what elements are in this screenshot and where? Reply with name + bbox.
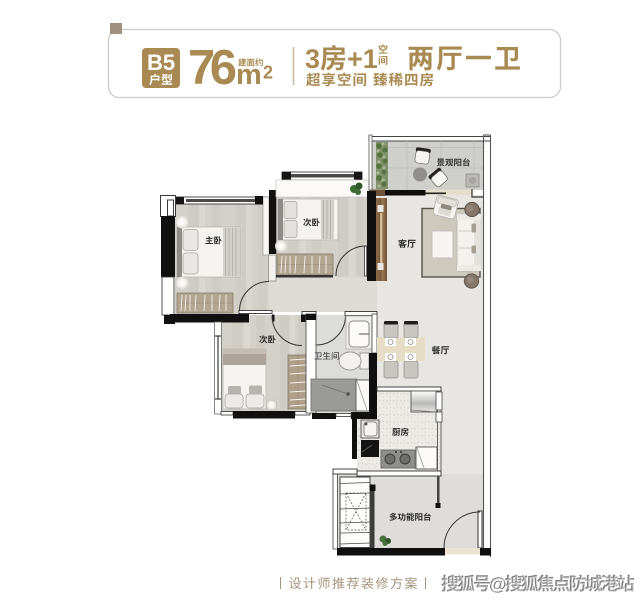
svg-text:76: 76 bbox=[188, 41, 237, 95]
svg-text:B5: B5 bbox=[147, 50, 175, 75]
svg-text:2: 2 bbox=[263, 63, 273, 83]
